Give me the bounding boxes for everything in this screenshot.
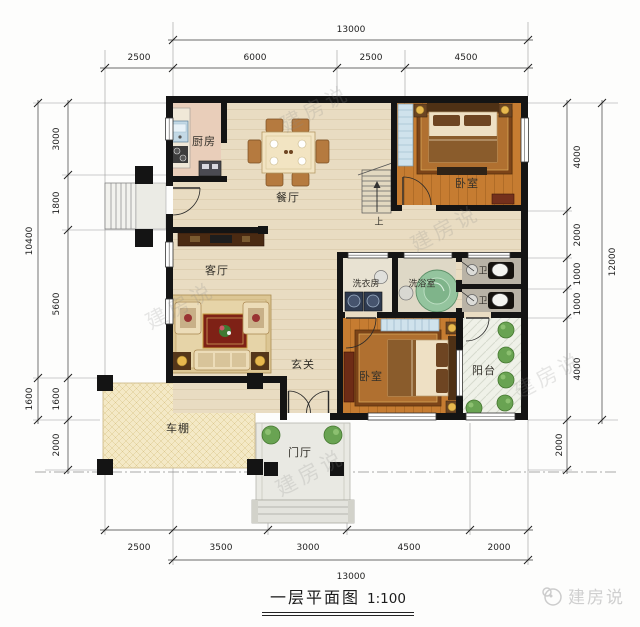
dim-bottom-seg: 3000 <box>297 543 320 553</box>
room-label-porch: 门厅 <box>288 444 312 460</box>
dim-right-outer: 12000 <box>608 248 618 277</box>
dim-right-inner: 1000 <box>573 293 583 316</box>
dim-bottom-seg: 4500 <box>398 543 421 553</box>
drawing-title: 一层平面图1:100 <box>262 584 414 616</box>
dim-left-inner: 5600 <box>52 293 62 316</box>
room-label-foyer: 玄关 <box>291 356 315 372</box>
room-label-carport: 车棚 <box>166 420 190 436</box>
dim-left-outer: 10400 <box>25 227 35 256</box>
room-label-wc-bottom: 卫 <box>478 294 487 307</box>
bedroom-bottom-furniture <box>344 319 458 413</box>
dim-top-total: 13000 <box>337 25 366 35</box>
floor-plan-page: 建房说 建房说 建房说 建房说 建房说 厨房 餐厅 客厅 玄关 卧室 卧室 洗衣… <box>0 0 640 627</box>
room-label-dining: 餐厅 <box>276 189 300 205</box>
drawing-scale: 1:100 <box>367 591 406 607</box>
room-label-kitchen: 厨房 <box>192 133 216 149</box>
dim-left-inner: 1600 <box>52 388 62 411</box>
room-label-bedroom-bottom: 卧室 <box>359 368 383 384</box>
dim-left-inner: 3000 <box>52 128 62 151</box>
dim-right-inner: 4000 <box>573 358 583 381</box>
dim-bottom-seg: 2500 <box>128 543 151 553</box>
floor-plan-drawing <box>0 0 640 627</box>
brand-watermark: 建房说 <box>540 583 625 608</box>
dim-bottom-total: 13000 <box>337 572 366 582</box>
room-label-bedroom-top: 卧室 <box>455 175 479 191</box>
dim-right-inner: 1000 <box>573 263 583 286</box>
drawing-title-text: 一层平面图 <box>270 588 360 607</box>
dim-bottom-seg: 3500 <box>210 543 233 553</box>
brand-logo-icon <box>540 584 564 608</box>
dim-top-seg: 2500 <box>360 53 383 63</box>
dim-top-seg: 2500 <box>128 53 151 63</box>
dim-top-seg: 4500 <box>455 53 478 63</box>
room-label-balcony: 阳台 <box>472 362 496 378</box>
dim-right-inner: 4000 <box>573 146 583 169</box>
dim-right-below: 2000 <box>555 434 565 457</box>
room-label-laundry: 洗衣房 <box>352 277 379 290</box>
room-label-bath: 洗浴室 <box>408 277 435 290</box>
room-label-wc-top: 卫 <box>478 264 487 277</box>
brand-name: 建房说 <box>568 583 625 608</box>
dim-top-seg: 6000 <box>244 53 267 63</box>
dim-left-inner: 2000 <box>52 434 62 457</box>
room-label-living: 客厅 <box>205 262 229 278</box>
dim-left-inner: 1800 <box>52 192 62 215</box>
exterior-stair <box>105 166 166 247</box>
dim-bottom-seg: 2000 <box>488 543 511 553</box>
stair-up-label: 上 <box>374 215 383 228</box>
dim-left-outer: 1600 <box>25 388 35 411</box>
dim-right-inner: 2000 <box>573 224 583 247</box>
